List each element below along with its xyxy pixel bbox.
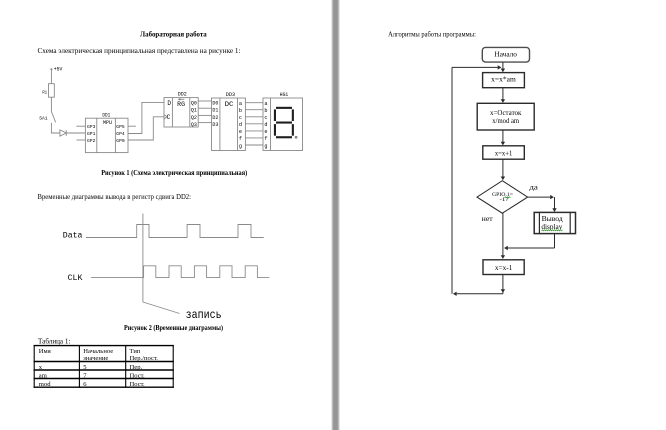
svg-text:Таблица 1:: Таблица 1:	[38, 338, 70, 346]
svg-text:Рисунок 1 (Схема электрическая: Рисунок 1 (Схема электрическая принципиа…	[101, 170, 247, 177]
svg-text:GP0: GP0	[116, 138, 125, 144]
svg-text:a: a	[264, 101, 267, 107]
svg-text:D2: D2	[212, 115, 218, 121]
svg-text:c: c	[264, 115, 267, 121]
svg-text:f: f	[264, 136, 267, 142]
svg-text:Q2: Q2	[191, 115, 197, 121]
svg-text:Схема электрическая принципиал: Схема электрическая принципиальная предс…	[38, 47, 241, 55]
svg-text:Q1: Q1	[191, 108, 197, 114]
svg-text:D3: D3	[212, 122, 218, 128]
svg-text:c: c	[239, 115, 242, 121]
svg-text:DD3: DD3	[226, 92, 235, 98]
svg-text:Начальное: Начальное	[83, 348, 113, 355]
svg-text:am: am	[39, 372, 48, 379]
svg-text:Алгоритмы работы программы:: Алгоритмы работы программы:	[388, 30, 476, 38]
svg-text:x=x-1: x=x-1	[495, 264, 513, 272]
svg-text:D0: D0	[212, 101, 218, 107]
svg-text:да: да	[529, 185, 538, 192]
svg-text:Начало: Начало	[494, 50, 517, 58]
svg-text:b: b	[239, 108, 242, 114]
svg-text:Рисунок 2 (Временные диаграммы: Рисунок 2 (Временные диаграммы)	[124, 325, 223, 332]
svg-text:значение: значение	[83, 355, 108, 362]
svg-text:Лабораторная работа: Лабораторная работа	[140, 29, 207, 38]
svg-text:x/mod am: x/mod am	[492, 117, 519, 125]
svg-text:RG: RG	[177, 101, 185, 108]
svg-text:e: e	[264, 129, 267, 135]
svg-text:x=x+1: x=x+1	[495, 149, 513, 157]
svg-text:MPU: MPU	[103, 120, 112, 126]
svg-text:нет: нет	[482, 216, 493, 223]
svg-text:x=Остаток: x=Остаток	[490, 109, 522, 117]
svg-text:DD2: DD2	[178, 92, 187, 98]
svg-text:g: g	[239, 143, 242, 149]
svg-text:d: d	[264, 122, 267, 128]
svg-text:Пост.: Пост.	[130, 372, 146, 379]
svg-text:GP3: GP3	[87, 124, 96, 130]
svg-text:g: g	[264, 143, 267, 149]
svg-text:R1: R1	[42, 89, 47, 95]
svg-text:Q0: Q0	[191, 101, 197, 107]
svg-text:GP4: GP4	[116, 131, 125, 137]
svg-text:CLK: CLK	[68, 274, 83, 283]
svg-text:DC: DC	[225, 101, 234, 108]
svg-text:x=x*am: x=x*am	[491, 75, 516, 83]
svg-text:D: D	[167, 100, 171, 107]
svg-text:Пер./пост.: Пер./пост.	[130, 355, 159, 362]
svg-text:GP5: GP5	[116, 124, 125, 130]
svg-text:Data: Data	[63, 232, 83, 241]
svg-text:Временные диаграммы вывода в р: Временные диаграммы вывода в регистр сдв…	[38, 193, 192, 201]
svg-text:C: C	[167, 114, 171, 121]
svg-text:Пост.: Пост.	[130, 381, 146, 388]
svg-text:+5V: +5V	[54, 66, 63, 72]
svg-text:mod: mod	[39, 381, 51, 388]
svg-text:Q3: Q3	[191, 122, 197, 128]
svg-text:Пер.: Пер.	[130, 364, 143, 371]
svg-text:Имя: Имя	[39, 348, 51, 355]
svg-text:HG1: HG1	[280, 92, 288, 98]
svg-text:b: b	[264, 108, 267, 114]
svg-text:d: d	[239, 122, 242, 128]
svg-text:SA1: SA1	[39, 116, 48, 122]
svg-text:D1: D1	[212, 108, 218, 114]
svg-text:Тип: Тип	[130, 348, 141, 355]
svg-text:f: f	[239, 136, 242, 142]
svg-text:запись: запись	[186, 308, 222, 322]
svg-text:-1?: -1?	[500, 198, 510, 203]
svg-text:e: e	[239, 129, 242, 135]
svg-text:a: a	[239, 101, 242, 107]
svg-text:GP1: GP1	[87, 131, 96, 137]
svg-text:GP2: GP2	[87, 138, 96, 144]
svg-text:DD1: DD1	[102, 113, 110, 119]
